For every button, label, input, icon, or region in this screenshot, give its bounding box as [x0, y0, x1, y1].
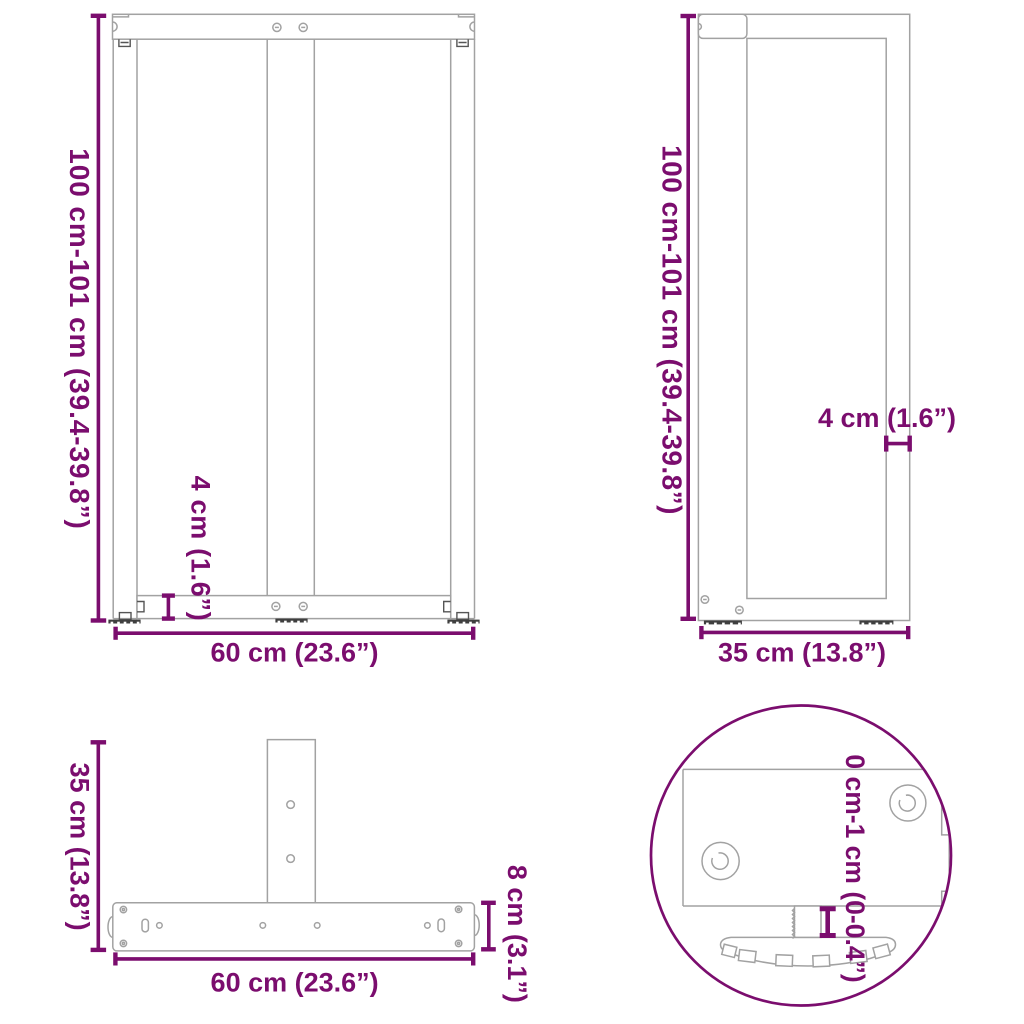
svg-text:35 cm (13.8”): 35 cm (13.8”): [65, 763, 95, 931]
svg-text:100 cm-101 cm (39.4-39.8”): 100 cm-101 cm (39.4-39.8”): [64, 148, 95, 529]
svg-text:4 cm (1.6”): 4 cm (1.6”): [186, 476, 216, 622]
svg-text:35 cm (13.8”): 35 cm (13.8”): [718, 637, 886, 667]
svg-text:0 cm-1 cm (0-0.4”): 0 cm-1 cm (0-0.4”): [840, 754, 870, 982]
svg-text:60 cm (23.6”): 60 cm (23.6”): [210, 638, 378, 668]
svg-text:60 cm (23.6”): 60 cm (23.6”): [211, 968, 379, 998]
svg-text:100 cm-101 cm (39.4-39.8”): 100 cm-101 cm (39.4-39.8”): [657, 145, 688, 515]
svg-text:4 cm (1.6”): 4 cm (1.6”): [818, 403, 956, 433]
svg-text:8 cm (3.1”): 8 cm (3.1”): [502, 865, 532, 1003]
